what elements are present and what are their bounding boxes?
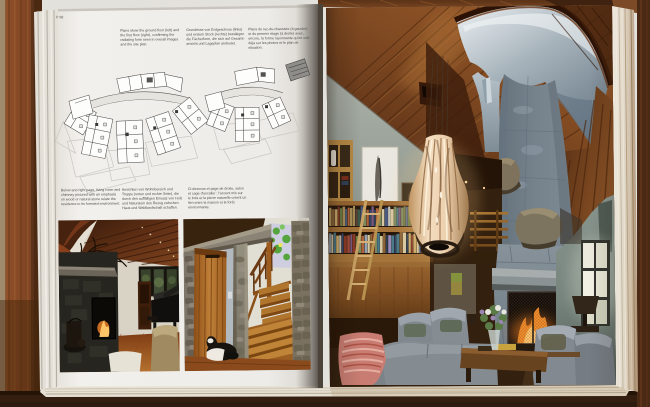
svg-text:environnante.: environnante. <box>188 205 210 209</box>
svg-text:radiating form seen in overall: radiating form seen in overall images <box>120 37 178 42</box>
svg-text:residence to its forested envi: residence to its forested environment. <box>61 202 120 207</box>
svg-text:lien entre la maison et la for: lien entre la maison et la forêt <box>188 200 235 204</box>
svg-text:Haus und Waldlandschaft schaff: Haus und Waldlandschaft schaffen. <box>122 206 178 211</box>
svg-text:and the site plan.: and the site plan. <box>120 42 147 46</box>
svg-text:P 98: P 98 <box>56 15 63 19</box>
svg-text:déjà sur les photos et le plan: déjà sur les photos et le plan de <box>248 41 298 46</box>
svg-text:ansicht und Lageplan andeutet.: ansicht und Lageplan andeutet. <box>186 41 236 46</box>
svg-text:situation.: situation. <box>248 46 262 50</box>
